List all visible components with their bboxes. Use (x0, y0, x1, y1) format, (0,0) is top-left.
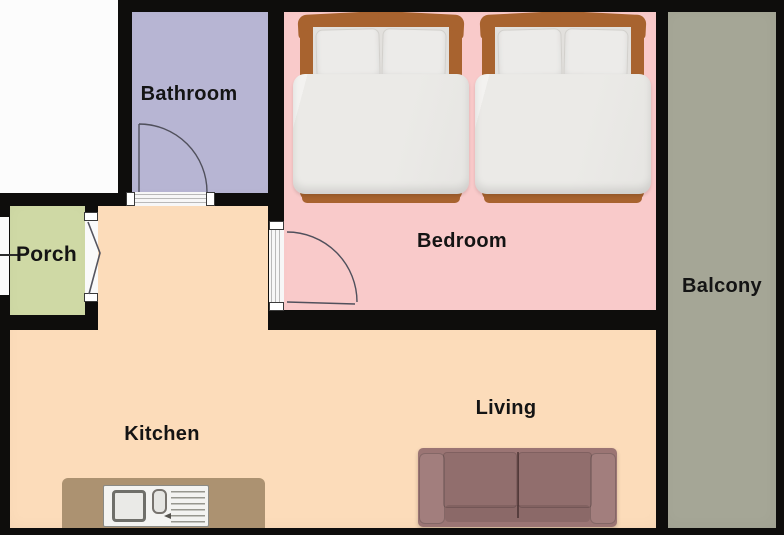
bed-duvet (475, 74, 651, 194)
wall-bedroom-bottom (270, 310, 668, 330)
porch-label: Porch (8, 244, 85, 265)
sofa-back-cushion (443, 452, 517, 508)
living-label: Living (406, 398, 606, 418)
sink-unit (103, 485, 209, 527)
sink-tap (152, 489, 167, 514)
kitchen-counter (62, 478, 265, 528)
sofa (418, 448, 617, 527)
sink-drain-arrow-icon (164, 513, 171, 519)
bathroom-label: Bathroom (118, 84, 260, 104)
bathroom-door-swing (131, 112, 215, 196)
bedroom-door-threshold (269, 230, 284, 302)
wall-top (118, 0, 784, 12)
kitchen-label: Kitchen (12, 424, 312, 444)
bed-duvet (293, 74, 469, 194)
bed-1 (292, 12, 470, 205)
sofa-arm (419, 453, 445, 524)
bedroom-door-jamb (269, 221, 284, 230)
porch-door-leaf (83, 214, 105, 300)
sofa-arm (590, 453, 616, 524)
wall-porch-bottom (0, 315, 98, 330)
bedroom-label: Bedroom (284, 231, 640, 251)
floorplan-canvas: Bathroom Bedroom Porch Kitchen Living Ba… (0, 0, 784, 535)
room-balcony (656, 0, 784, 535)
sink-drainboard (171, 491, 205, 523)
outside-area (0, 0, 118, 193)
sofa-cushion-divider (517, 452, 519, 518)
wall-balcony-left (656, 0, 668, 535)
wall-balcony-right (776, 0, 784, 535)
bed-2 (474, 12, 652, 205)
sofa-back-cushion (518, 452, 592, 508)
sink-basin (112, 490, 146, 522)
bedroom-door-jamb (269, 302, 284, 311)
balcony-label: Balcony (668, 276, 776, 296)
